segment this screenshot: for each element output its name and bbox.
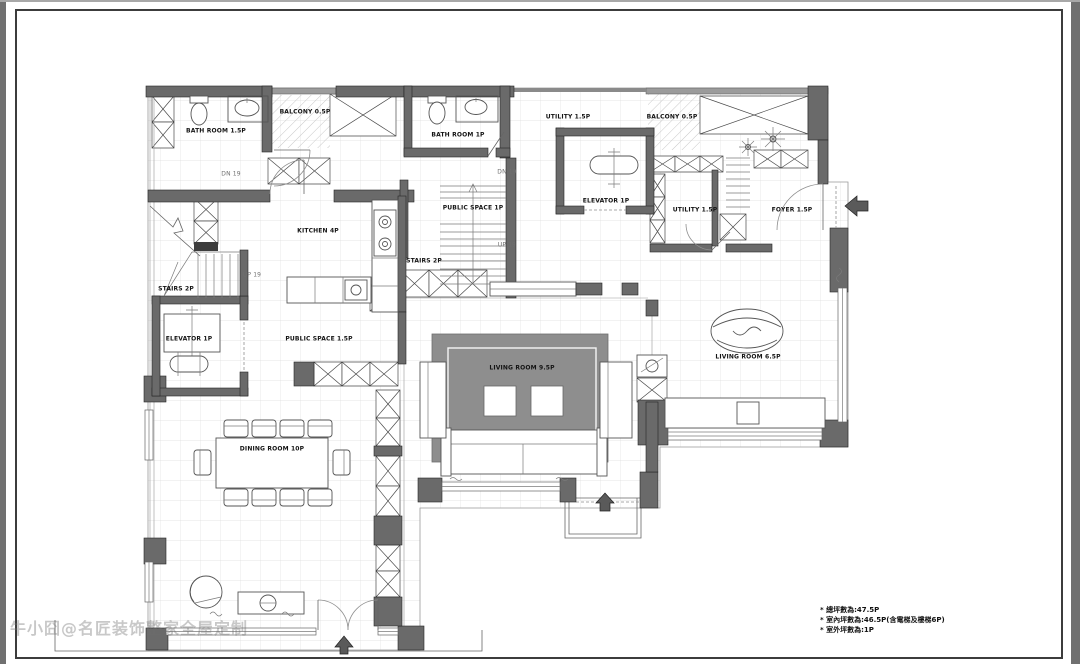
room-label-living-room-65: LIVING ROOM 6.5P: [715, 354, 780, 361]
vent-box: [637, 355, 667, 377]
room-label-public-space-1p: PUBLIC SPACE 1P: [443, 205, 504, 212]
room-label-stairs-left: STAIRS 2P: [158, 286, 194, 293]
area-notes: * 總坪數為:47.5P * 室內坪數為:46.5P(含電梯及樓梯6P) * 室…: [820, 605, 945, 635]
room-label-balcony-top-left: BALCONY 0.5P: [280, 109, 331, 116]
room-label-kitchen: KITCHEN 4P: [297, 228, 339, 235]
watermark: 牛小囧@名匠装饰整家全屋定制: [10, 615, 248, 639]
area-note-indoor: * 室內坪數為:46.5P(含電梯及樓梯6P): [820, 615, 945, 625]
lounge-chair: [190, 576, 222, 608]
room-label-utility-top: UTILITY 1.5P: [546, 114, 591, 121]
room-label-elevator-left: ELEVATOR 1P: [166, 336, 213, 343]
room-label-public-space-15p: PUBLIC SPACE 1.5P: [285, 336, 352, 343]
room-label-bathroom-15: BATH ROOM 1.5P: [186, 128, 246, 135]
shaft-label-badge: [194, 242, 218, 251]
room-label-elevator-right: ELEVATOR 1P: [583, 198, 630, 205]
room-label-bathroom-1: BATH ROOM 1P: [431, 132, 484, 139]
area-note-total: * 總坪數為:47.5P: [820, 605, 945, 615]
room-label-utility-right: UTILITY 1.5P: [673, 207, 718, 214]
room-label-dining-room: DINING ROOM 10P: [240, 446, 304, 453]
tv-cabinet: [665, 398, 825, 428]
screen-edge-right: [1071, 0, 1080, 664]
annotation-up-left: UP 19: [243, 272, 261, 279]
entry-arrow-right: [845, 196, 868, 216]
room-label-stairs-mid: STAIRS 2P: [406, 258, 442, 265]
area-note-outdoor: * 室外坪數為:1P: [820, 625, 945, 635]
screen-edge-top: [0, 0, 1080, 2]
room-label-living-room-95: LIVING ROOM 9.5P: [489, 365, 554, 372]
oval-table: [711, 309, 783, 353]
room-label-foyer: FOYER 1.5P: [772, 207, 813, 214]
annotation-dn-mid: DN 19: [497, 169, 516, 176]
console-table: [238, 592, 304, 614]
room-label-balcony-top-right: BALCONY 0.5P: [647, 114, 698, 121]
annotation-dn-left: DN 19: [221, 171, 240, 178]
floor-plan-drawing: [0, 0, 1080, 664]
screenshot-root: BATH ROOM 1.5P BALCONY 0.5P BATH ROOM 1P…: [0, 0, 1080, 664]
annotation-up-mid: UP 19: [498, 242, 516, 249]
screen-edge-left: [0, 0, 6, 664]
